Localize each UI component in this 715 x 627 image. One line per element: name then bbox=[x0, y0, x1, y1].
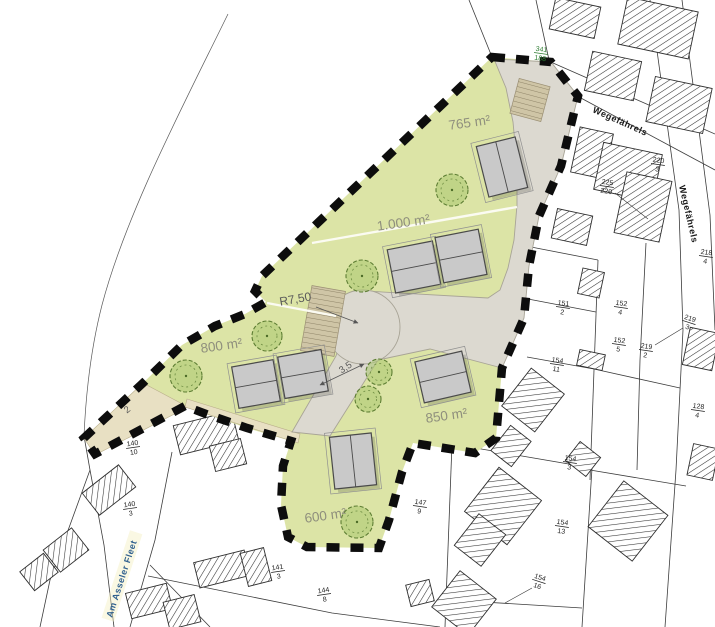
street-name: Wegefährels bbox=[677, 184, 700, 244]
existing-building bbox=[584, 51, 641, 101]
existing-building bbox=[406, 579, 435, 606]
existing-building bbox=[682, 327, 715, 370]
driveway-hatch bbox=[578, 268, 605, 298]
parcel-line bbox=[594, 369, 680, 388]
parcel-leader bbox=[655, 328, 683, 345]
tree bbox=[355, 386, 381, 412]
site-plan: R7,50 3,5 2 765 m² 1.000 m² 800 m² 850 m… bbox=[0, 0, 715, 627]
existing-building bbox=[551, 209, 592, 246]
parcel-number: 1284 bbox=[690, 403, 706, 421]
parcel-leader bbox=[505, 588, 532, 603]
parcel-line bbox=[469, 0, 492, 57]
parcel-number: 1403 bbox=[122, 501, 138, 519]
parcel-number: 15411 bbox=[549, 357, 565, 375]
parcel-line bbox=[40, 436, 90, 627]
svg-text:9: 9 bbox=[417, 508, 422, 515]
parcel-number: 1479 bbox=[412, 499, 428, 517]
parcel-number: 1525 bbox=[611, 337, 627, 355]
tree bbox=[252, 321, 282, 351]
tree bbox=[436, 174, 468, 206]
svg-text:3: 3 bbox=[128, 510, 133, 517]
existing-building bbox=[491, 425, 531, 466]
driveway-hatch bbox=[577, 349, 606, 370]
svg-text:4: 4 bbox=[703, 258, 708, 265]
parcel-number: 1413 bbox=[270, 564, 286, 582]
existing-building bbox=[502, 368, 565, 432]
parcel-number: 2184 bbox=[698, 249, 714, 267]
parcel-line bbox=[531, 247, 598, 260]
tree bbox=[366, 359, 392, 385]
existing-building bbox=[618, 0, 698, 59]
svg-text:16: 16 bbox=[532, 582, 542, 591]
parcel-number: 1448 bbox=[316, 587, 332, 605]
svg-text:8: 8 bbox=[322, 596, 327, 603]
existing-building bbox=[687, 444, 715, 481]
svg-text:3: 3 bbox=[276, 573, 281, 580]
svg-text:4: 4 bbox=[695, 412, 700, 419]
parcel-number: 15413 bbox=[554, 519, 570, 537]
parcel-line bbox=[590, 470, 686, 486]
svg-text:2: 2 bbox=[643, 352, 648, 359]
svg-text:220: 220 bbox=[600, 188, 613, 197]
svg-text:3: 3 bbox=[567, 464, 572, 471]
existing-building bbox=[588, 481, 668, 561]
existing-building bbox=[549, 0, 601, 38]
svg-text:11: 11 bbox=[552, 366, 560, 374]
tree bbox=[170, 360, 202, 392]
parcel-number: 1524 bbox=[613, 300, 629, 318]
parcel-number: 15416 bbox=[529, 573, 547, 593]
parcel-number: 14010 bbox=[125, 440, 141, 458]
svg-text:4: 4 bbox=[618, 309, 623, 316]
existing-building bbox=[432, 571, 497, 627]
tree bbox=[346, 260, 378, 292]
svg-text:2: 2 bbox=[560, 309, 565, 316]
site-plan-drawing: R7,50 3,5 2 765 m² 1.000 m² 800 m² 850 m… bbox=[0, 0, 715, 627]
existing-building bbox=[646, 76, 712, 133]
svg-text:10: 10 bbox=[129, 449, 138, 457]
parcel-number: 1512 bbox=[555, 300, 571, 318]
svg-text:13: 13 bbox=[557, 528, 566, 536]
svg-text:5: 5 bbox=[616, 346, 621, 353]
existing-building bbox=[240, 548, 272, 587]
